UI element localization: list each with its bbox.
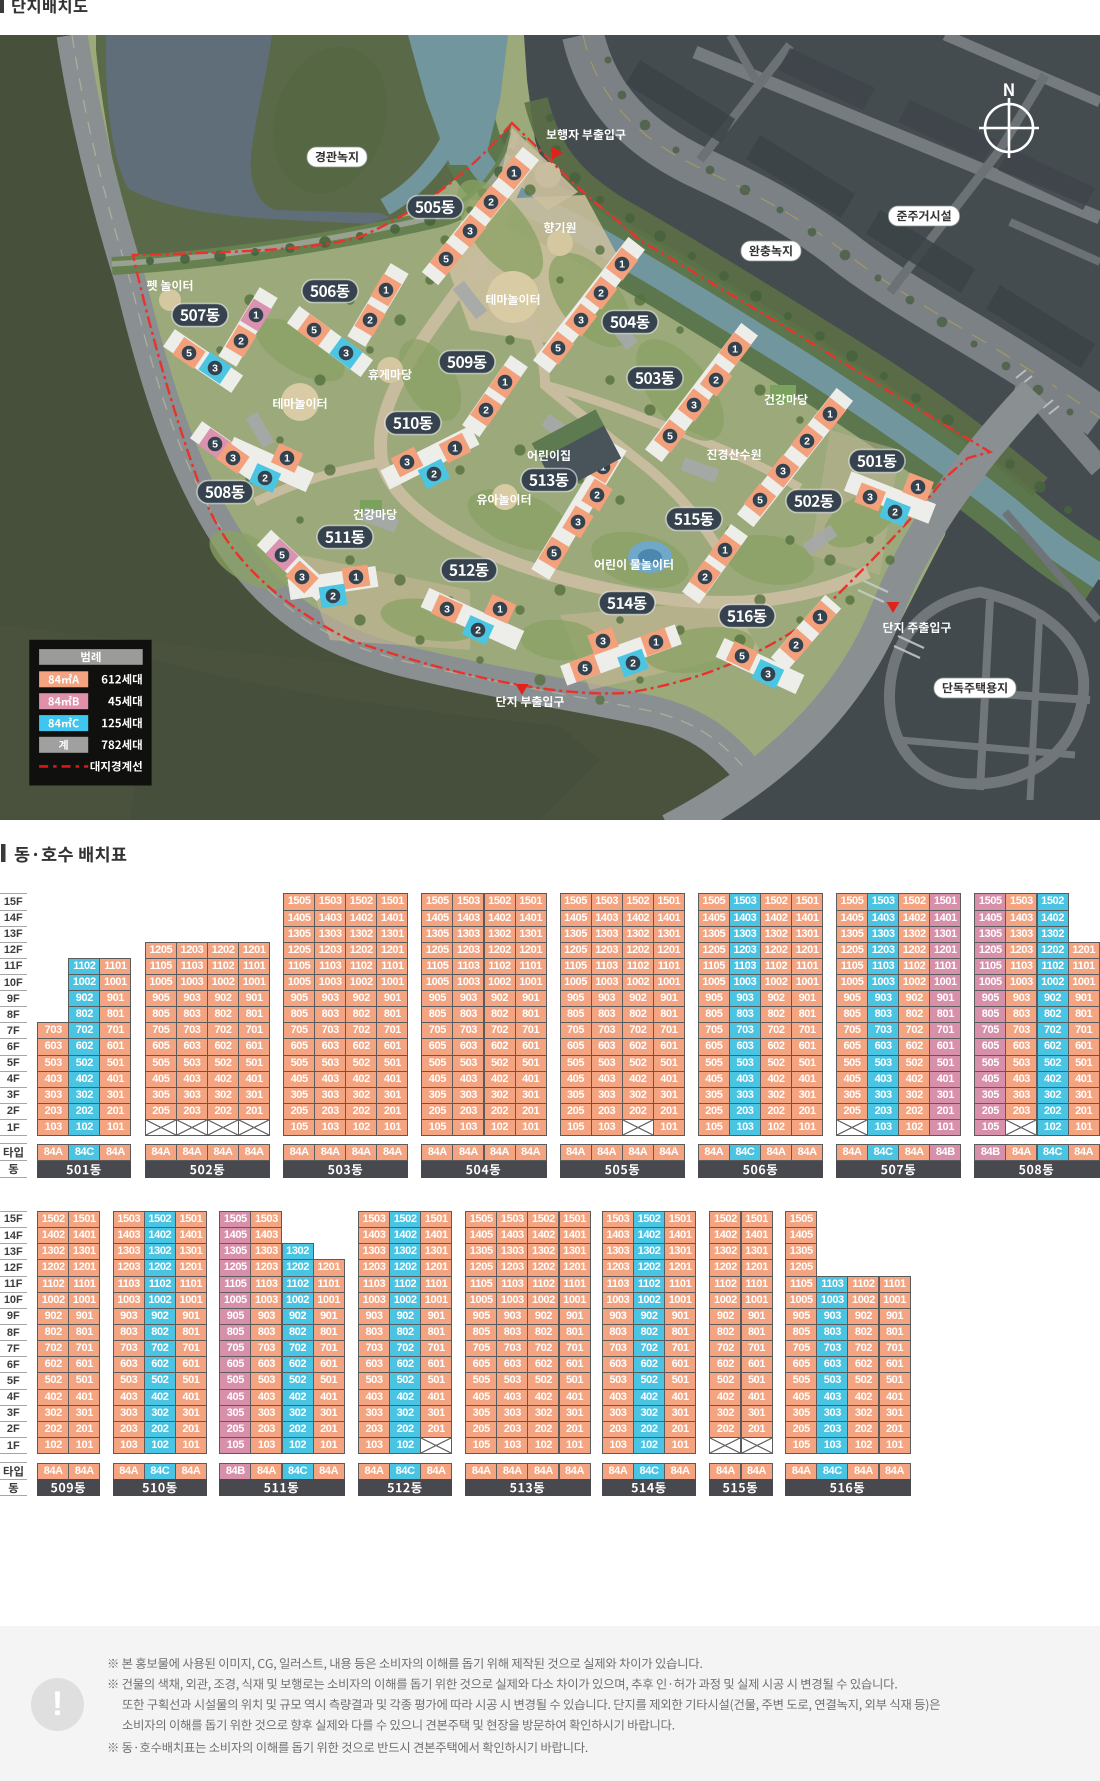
- svg-text:1: 1: [452, 443, 458, 455]
- svg-text:5: 5: [279, 550, 285, 562]
- svg-text:1: 1: [722, 545, 728, 557]
- svg-text:5: 5: [212, 439, 218, 451]
- svg-text:5: 5: [582, 663, 588, 675]
- svg-text:1: 1: [817, 612, 823, 624]
- svg-text:5: 5: [757, 495, 763, 507]
- svg-text:2: 2: [702, 572, 708, 584]
- svg-text:2: 2: [488, 197, 494, 209]
- svg-text:2: 2: [367, 315, 373, 327]
- svg-text:1: 1: [284, 453, 290, 465]
- svg-text:3: 3: [299, 572, 305, 584]
- svg-text:3: 3: [212, 363, 218, 375]
- svg-text:5: 5: [739, 651, 745, 663]
- svg-text:2: 2: [598, 288, 604, 300]
- svg-text:3: 3: [780, 466, 786, 478]
- svg-text:2: 2: [330, 591, 336, 603]
- svg-text:5: 5: [667, 431, 673, 443]
- svg-text:1: 1: [511, 168, 517, 180]
- svg-text:3: 3: [230, 453, 236, 465]
- svg-text:1: 1: [653, 637, 659, 649]
- svg-text:1: 1: [353, 572, 359, 584]
- svg-text:5: 5: [443, 254, 449, 266]
- svg-text:2: 2: [475, 625, 481, 637]
- svg-text:1: 1: [502, 377, 508, 389]
- svg-text:1: 1: [732, 344, 738, 356]
- svg-text:1: 1: [497, 604, 503, 616]
- svg-text:5: 5: [186, 348, 192, 360]
- svg-text:1: 1: [619, 259, 625, 271]
- svg-text:1: 1: [915, 482, 921, 494]
- svg-text:1: 1: [383, 285, 389, 297]
- svg-text:3: 3: [600, 636, 606, 648]
- svg-text:2: 2: [892, 507, 898, 519]
- svg-text:2: 2: [594, 490, 600, 502]
- svg-text:5: 5: [551, 548, 557, 560]
- svg-text:3: 3: [691, 400, 697, 412]
- svg-text:3: 3: [444, 604, 450, 616]
- svg-text:3: 3: [343, 348, 349, 360]
- svg-text:2: 2: [804, 436, 810, 448]
- svg-text:2: 2: [262, 473, 268, 485]
- svg-text:3: 3: [404, 457, 410, 469]
- svg-text:2: 2: [483, 405, 489, 417]
- svg-text:2: 2: [793, 640, 799, 652]
- svg-text:1: 1: [253, 310, 259, 322]
- svg-text:2: 2: [713, 375, 719, 387]
- svg-text:3: 3: [467, 226, 473, 238]
- svg-text:5: 5: [311, 325, 317, 337]
- svg-text:3: 3: [867, 492, 873, 504]
- svg-text:2: 2: [431, 469, 437, 481]
- svg-text:2: 2: [630, 658, 636, 670]
- svg-text:5: 5: [555, 343, 561, 355]
- svg-text:2: 2: [238, 336, 244, 348]
- svg-text:3: 3: [578, 315, 584, 327]
- svg-text:1: 1: [827, 409, 833, 421]
- svg-text:3: 3: [575, 517, 581, 529]
- svg-text:3: 3: [765, 669, 771, 681]
